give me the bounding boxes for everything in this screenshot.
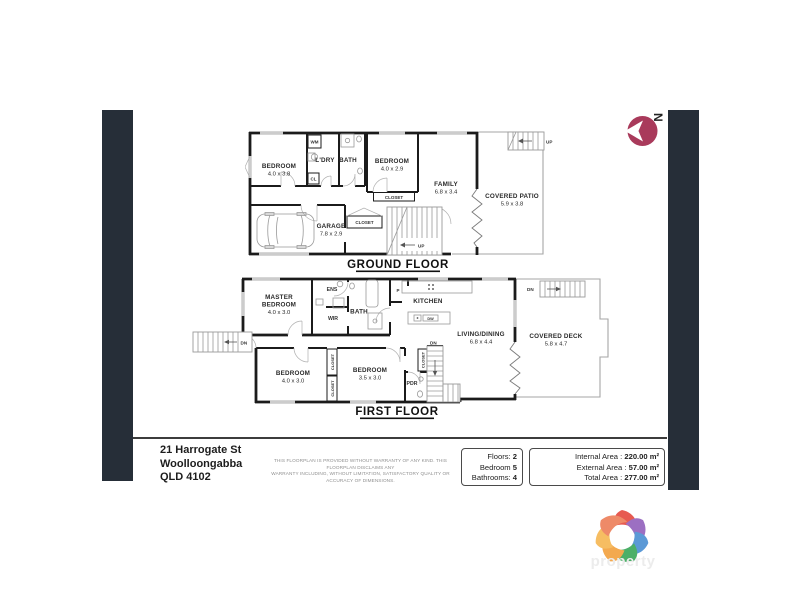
ground-stairs-main: UP [387,207,442,255]
living-name: LIVING/DINING [457,331,504,338]
address-line3: QLD 4102 [160,471,242,485]
north-compass-icon: N [620,104,672,156]
dn-label-deck: DN [527,287,534,292]
total-area-label: Total Area : [584,473,622,482]
compass-north-letter: N [651,113,665,122]
first-floor-plan: DN DN DN MASTER BEDROOM 4.0 x 3.0 ENS WI… [190,272,612,422]
footer-separator [133,437,667,439]
internal-area-row: Internal Area : 220.00 m² [530,452,659,463]
first-title-underline [360,418,434,420]
hall-closet-doors [347,208,382,216]
hall-closet-label: CLOSET [355,220,374,225]
first-bedroom3-dims: 3.5 x 3.0 [359,376,382,382]
up-label-patio: UP [546,140,552,145]
bedroom-row: Bedroom 5 [462,463,517,474]
property-address: 21 Harrogate St Woolloongabba QLD 4102 [160,444,242,485]
garage-name: GARAGE [317,223,346,230]
up-label-main: UP [418,244,424,249]
first-bedroom2-name: BEDROOM [276,370,310,377]
bathrooms-label: Bathrooms: [472,473,511,482]
stats-box: Floors: 2 Bedroom 5 Bathrooms: 4 [461,448,523,486]
closet-c-label: CLOSET [421,351,426,368]
ground-bath-label: BATH [339,157,357,164]
family-dims: 6.8 x 3.4 [435,190,458,196]
dn-label-left: DN [241,341,248,346]
bathrooms-row: Bathrooms: 4 [462,473,517,484]
kitchen-label: KITCHEN [413,298,443,305]
first-bedroom3-name: BEDROOM [353,367,387,374]
logo-watermark-text: property [578,553,668,570]
patio-dims: 5.9 x 3.8 [501,202,524,208]
first-floor-title: FIRST FLOOR [355,406,438,418]
floorplan-page: N [0,0,800,600]
garage-dims: 7.8 x 2.9 [320,232,343,238]
address-line1: 21 Harrogate St [160,444,242,458]
first-stairs-left: DN [193,332,252,352]
deck-name: COVERED DECK [529,333,582,340]
pdr-label: PDR [407,381,418,387]
dw-label: DW [427,317,434,321]
floors-label: Floors: [487,452,510,461]
ground-stairs-patio: UP [508,132,552,150]
external-area-value: 57.00 m² [629,463,659,472]
closet-b-label: CLOSET [330,380,335,397]
cl-label: CL [311,177,317,182]
ground-bedroom1-name: BEDROOM [262,163,296,170]
wm-label: WM [311,140,319,145]
internal-area-label: Internal Area : [575,452,622,461]
bathrooms-value: 4 [513,473,517,482]
first-stairs-mid: DN [427,341,460,403]
dn-label-mid: DN [430,341,437,346]
areas-box: Internal Area : 220.00 m² External Area … [529,448,665,486]
ldry-label: L'DRY [315,157,335,164]
patio-bifold-doors [472,189,482,247]
ground-bedroom2-name: BEDROOM [375,158,409,165]
total-area-value: 277.00 m² [624,473,659,482]
wir-label: WIR [328,316,338,322]
ground-floor-title: GROUND FLOOR [347,259,449,271]
pantry-label: P [396,288,399,293]
ground-bedroom2-dims: 4.0 x 2.9 [381,167,404,173]
bedroom-label: Bedroom [480,463,511,472]
closet-a-label: CLOSET [330,353,335,370]
address-line2: Woolloongabba [160,458,242,472]
disclaimer-line1: THIS FLOORPLAN IS PROVIDED WITHOUT WARRA… [263,458,458,471]
master-line1: MASTER [265,294,293,301]
disclaimer-text: THIS FLOORPLAN IS PROVIDED WITHOUT WARRA… [263,458,458,484]
bedroom-value: 5 [513,463,517,472]
deck-bifold-doors [510,342,520,394]
disclaimer-line2: WARRANTY INCLUDING, WITHOUT LIMITATION, … [263,471,458,484]
total-area-row: Total Area : 277.00 m² [530,473,659,484]
ground-floor-plan: UP UP BEDROOM 4.0 x 3.8 WM L'DRY CL BATH… [245,128,560,274]
ground-bedroom1-dims: 4.0 x 3.8 [268,172,291,178]
family-name: FAMILY [434,181,458,188]
living-dims: 6.8 x 4.4 [470,340,493,346]
master-line2: BEDROOM [262,302,296,309]
external-area-row: External Area : 57.00 m² [530,463,659,474]
first-stairs-deck: DN [527,281,585,297]
floors-value: 2 [513,452,517,461]
internal-area-value: 220.00 m² [624,452,659,461]
master-dims: 4.0 x 3.0 [268,310,291,316]
car-icon [257,213,314,249]
patio-name: COVERED PATIO [485,193,539,200]
floors-row: Floors: 2 [462,452,517,463]
external-area-label: External Area : [577,463,627,472]
right-dark-bar [668,110,699,490]
bedroom2-closet-label: CLOSET [385,195,404,200]
first-bath-label: BATH [350,309,368,316]
deck-dims: 5.8 x 4.7 [545,342,568,348]
first-bedroom2-dims: 4.0 x 3.0 [282,379,305,385]
ens-label: ENS [327,287,338,293]
left-dark-bar [102,110,133,481]
